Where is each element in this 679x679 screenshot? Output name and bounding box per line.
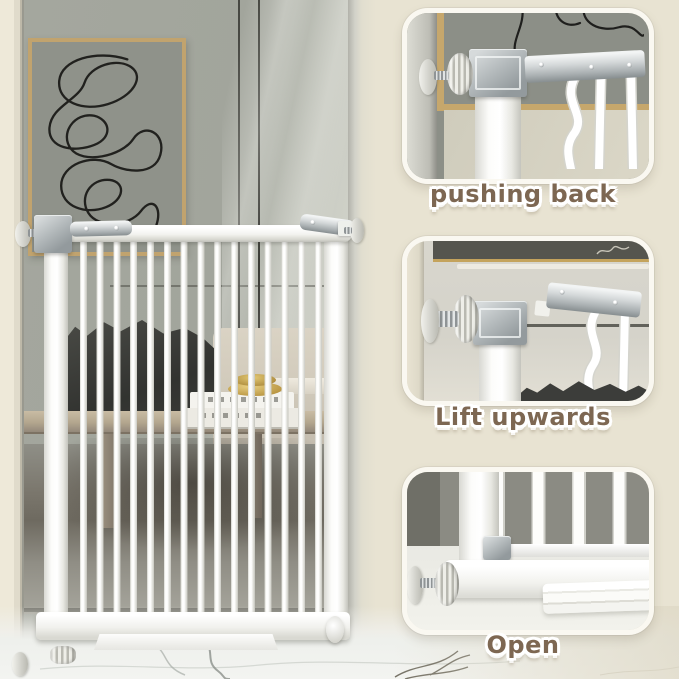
screw <box>310 220 316 226</box>
panel3-doorway-shadow <box>407 472 440 546</box>
panel2-gold-frame-edge <box>433 259 649 262</box>
threaded-spindle-right <box>344 227 352 234</box>
threshold-ramp <box>94 634 278 650</box>
gate-post-left <box>44 242 68 614</box>
panel1-threaded-spindle <box>434 71 449 80</box>
main-photo <box>0 0 372 679</box>
panel1-latch-housing <box>469 49 527 97</box>
screw <box>84 226 89 231</box>
wall-mount-disc-right <box>350 218 364 243</box>
panel1-outer-wall <box>407 13 437 179</box>
latch-housing-panel <box>475 56 521 90</box>
wall-mount-disc-bottom-left <box>12 652 28 676</box>
latch-handle <box>70 220 132 237</box>
step-photo-pushing-back <box>402 8 654 184</box>
screw <box>613 300 618 305</box>
panel2-latch-housing <box>473 301 527 345</box>
tension-knob-bottom-right <box>326 616 344 643</box>
screw <box>589 65 594 70</box>
product-instruction-image: pushing back Lift upwards <box>0 0 679 679</box>
panel3-gate-bars <box>491 472 639 547</box>
panel2-shelf-edge <box>457 264 649 269</box>
panel2-wall-disc <box>421 299 439 343</box>
screw <box>559 289 564 294</box>
gate-bars <box>70 240 322 614</box>
step-caption-lift-upwards: Lift upwards <box>398 403 648 431</box>
panel3-opened-gate-bar <box>491 544 649 557</box>
step-caption-pushing-back: pushing back <box>398 180 648 208</box>
panel1-gate-post <box>475 95 521 179</box>
latch-housing-left <box>34 215 72 253</box>
panel2-picture-frame <box>433 241 649 259</box>
panel1-tension-knob <box>447 53 473 95</box>
step-photo-open <box>402 467 654 635</box>
latch-housing-panel <box>479 308 521 338</box>
safety-gate <box>0 0 372 679</box>
screw <box>539 62 544 67</box>
panel1-gate-bars <box>557 75 641 169</box>
screw <box>114 226 119 231</box>
panel2-signature-scribble <box>595 244 635 258</box>
screw <box>627 63 632 68</box>
tension-knob-bottom-left <box>50 646 76 664</box>
panel2-gate-post <box>479 343 521 401</box>
panel3-bottom-latch <box>483 536 511 560</box>
gate-post-right <box>324 242 348 614</box>
step-caption-open: Open <box>398 631 648 659</box>
panel3-tension-knob <box>435 562 459 606</box>
step-photo-lift-upwards <box>402 236 654 406</box>
panel3-threshold-ramp <box>543 580 654 614</box>
